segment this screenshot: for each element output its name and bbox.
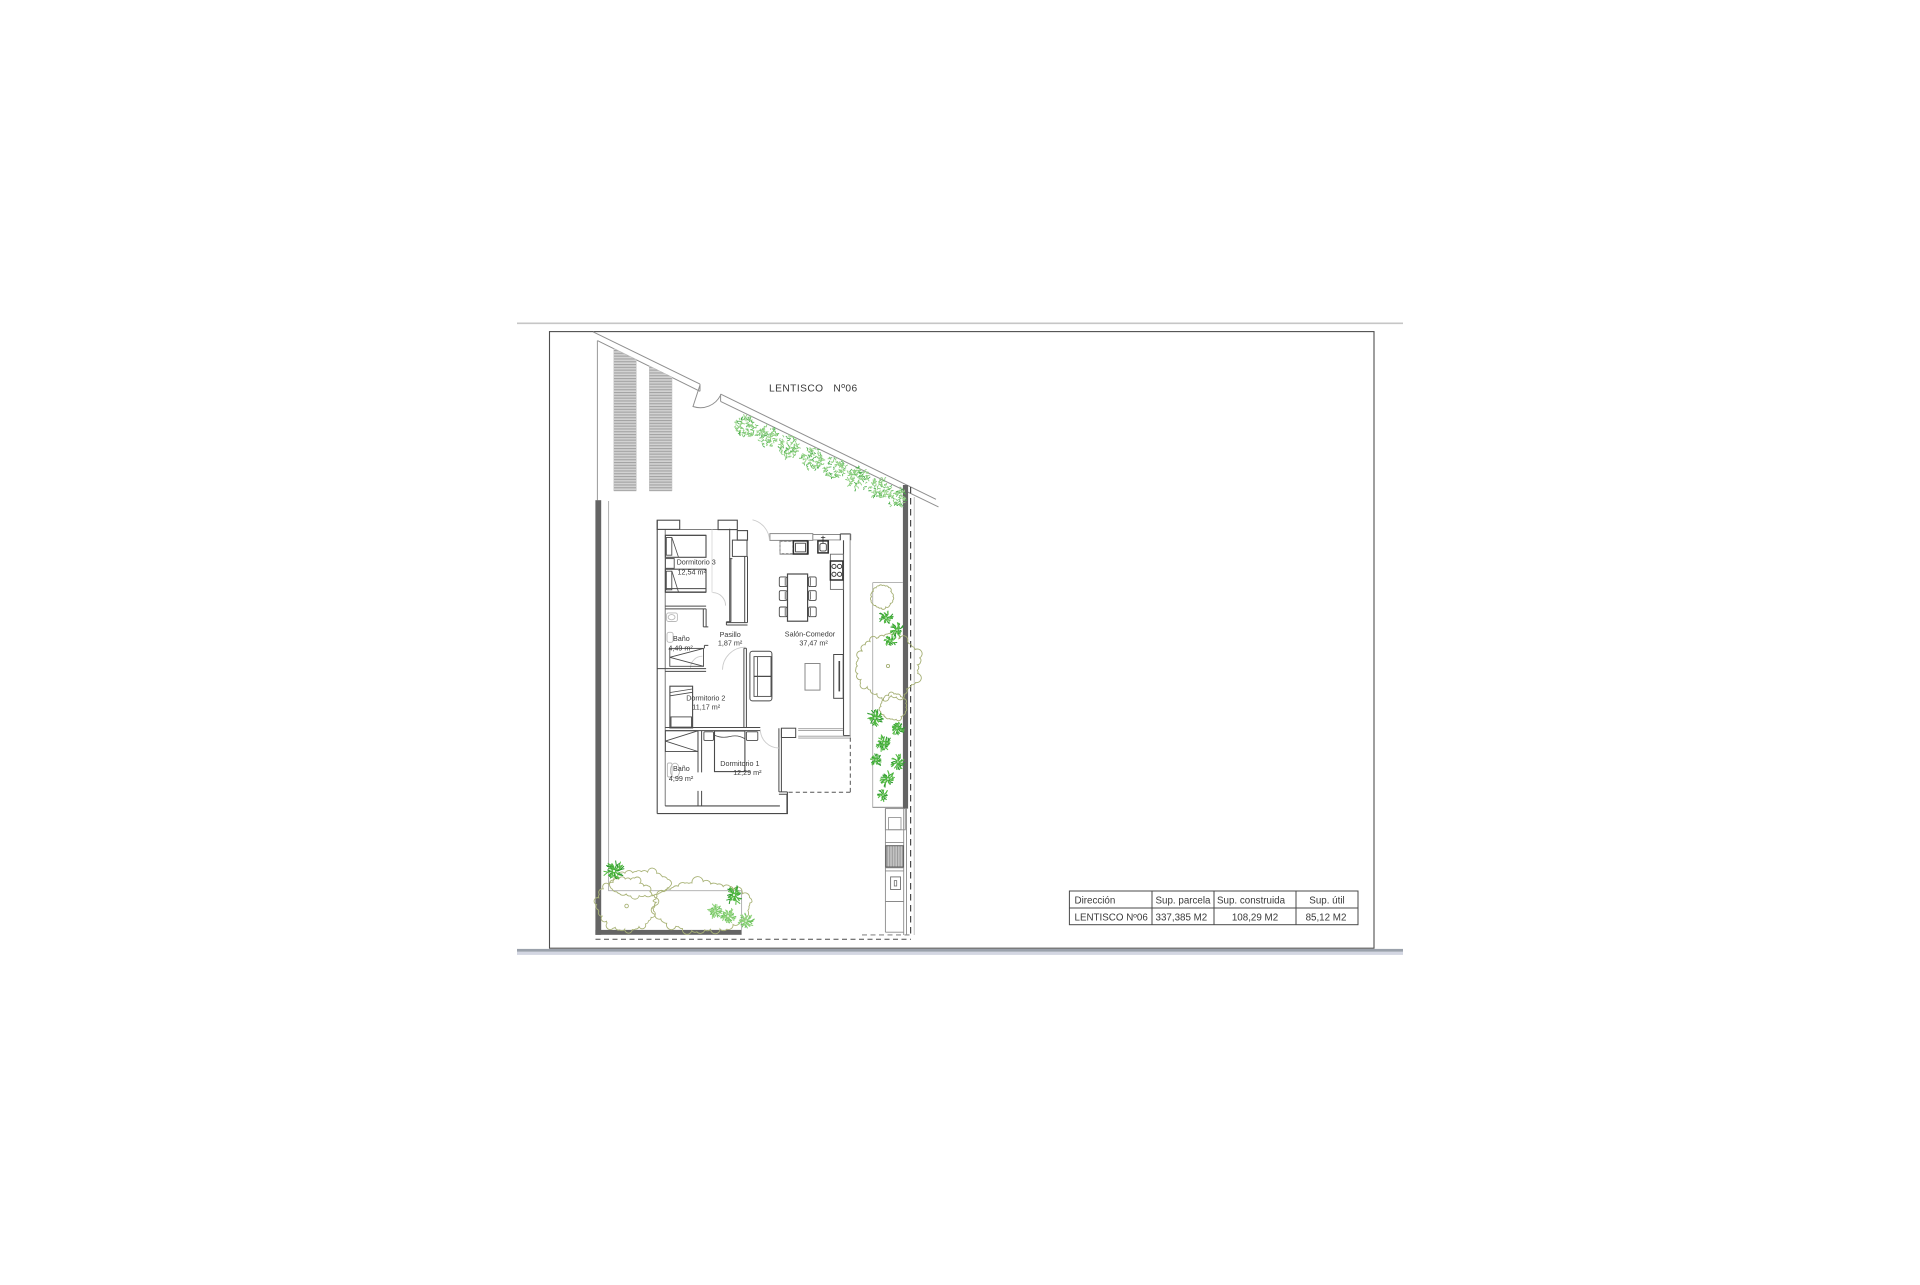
svg-text:Sup. construida: Sup. construida [1217, 895, 1286, 906]
svg-text:12,29 m²: 12,29 m² [733, 768, 762, 777]
svg-text:11,17 m²: 11,17 m² [692, 703, 720, 712]
svg-text:Salón-Comedor: Salón-Comedor [785, 630, 836, 639]
svg-text:Dormitorio 2: Dormitorio 2 [686, 694, 725, 703]
svg-text:108,29 M2: 108,29 M2 [1232, 912, 1278, 923]
svg-text:Sup. útil: Sup. útil [1309, 895, 1344, 906]
svg-text:4,49 m²: 4,49 m² [668, 643, 693, 652]
svg-text:337,385 M2: 337,385 M2 [1156, 912, 1208, 923]
svg-text:Dormitorio 3: Dormitorio 3 [677, 558, 716, 567]
svg-text:LENTISCO Nº06: LENTISCO Nº06 [1075, 912, 1149, 923]
svg-text:37,47 m²: 37,47 m² [799, 639, 828, 648]
svg-text:Baño: Baño [673, 634, 690, 643]
svg-text:Sup. parcela: Sup. parcela [1156, 895, 1212, 906]
svg-text:85,12 M2: 85,12 M2 [1306, 912, 1347, 923]
svg-text:Baño: Baño [673, 764, 690, 773]
svg-text:1,87 m²: 1,87 m² [718, 639, 743, 648]
svg-text:4,99 m²: 4,99 m² [669, 774, 694, 783]
svg-text:Dirección: Dirección [1075, 895, 1116, 906]
svg-text:12,54 m²: 12,54 m² [678, 567, 707, 576]
svg-text:Dormitorio 1: Dormitorio 1 [720, 759, 759, 768]
svg-text:LENTISCO Nº06: LENTISCO Nº06 [769, 384, 858, 395]
